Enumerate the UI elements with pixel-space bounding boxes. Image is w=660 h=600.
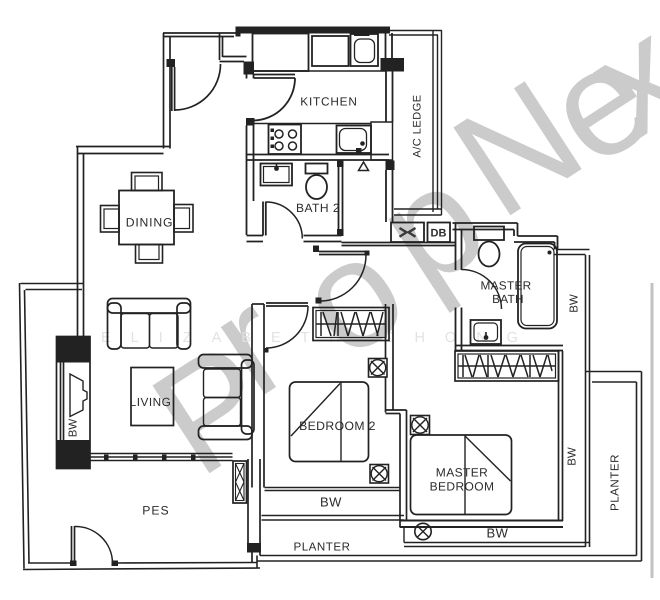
svg-text:DINING: DINING <box>126 216 173 230</box>
svg-text:BW: BW <box>569 294 581 313</box>
svg-text:A/C LEDGE: A/C LEDGE <box>412 94 424 157</box>
svg-text:DB: DB <box>431 228 447 240</box>
svg-text:BW: BW <box>487 526 509 541</box>
svg-text:BATH: BATH <box>492 292 524 306</box>
svg-text:BATH 2: BATH 2 <box>296 201 340 215</box>
svg-text:BW: BW <box>68 419 80 438</box>
svg-text:BW: BW <box>567 447 579 466</box>
svg-text:MASTER: MASTER <box>436 466 488 480</box>
svg-text:KITCHEN: KITCHEN <box>300 95 357 109</box>
svg-text:MASTER: MASTER <box>481 279 532 293</box>
svg-text:LIVING: LIVING <box>130 395 172 409</box>
svg-text:PLANTER: PLANTER <box>609 454 622 511</box>
svg-text:BEDROOM 2: BEDROOM 2 <box>299 419 376 433</box>
svg-text:PLANTER: PLANTER <box>294 541 351 554</box>
svg-text:BEDROOM: BEDROOM <box>430 480 495 494</box>
svg-text:PES: PES <box>142 504 169 518</box>
svg-text:BW: BW <box>320 495 342 510</box>
